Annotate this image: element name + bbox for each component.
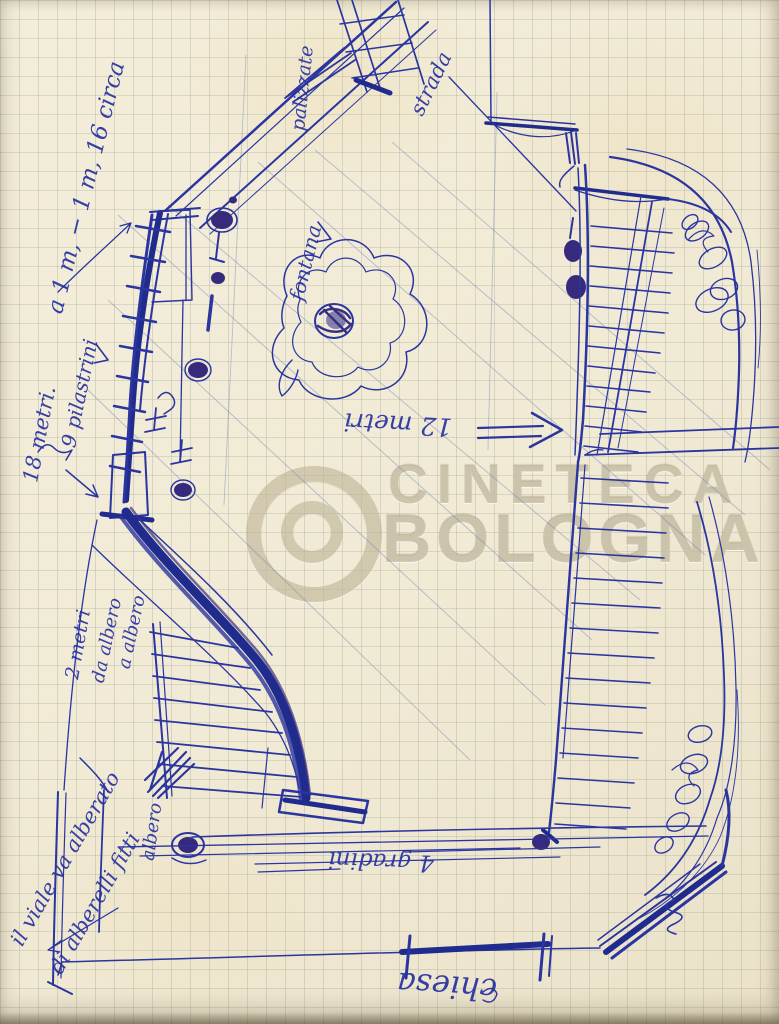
tree-dots (38, 197, 586, 864)
lower-right-wall (543, 463, 738, 958)
label-4-gradini: 4 gradini (316, 846, 447, 877)
scanned-sketch-page: CINETECA BOLOGNA (0, 0, 779, 1024)
corner-hedges-top-right (679, 212, 746, 332)
upper-right-steps-wall (486, 0, 761, 462)
palisade-sketch (150, 0, 576, 234)
guide-lines (88, 55, 770, 760)
scan-edge-shadow (0, 1012, 779, 1024)
